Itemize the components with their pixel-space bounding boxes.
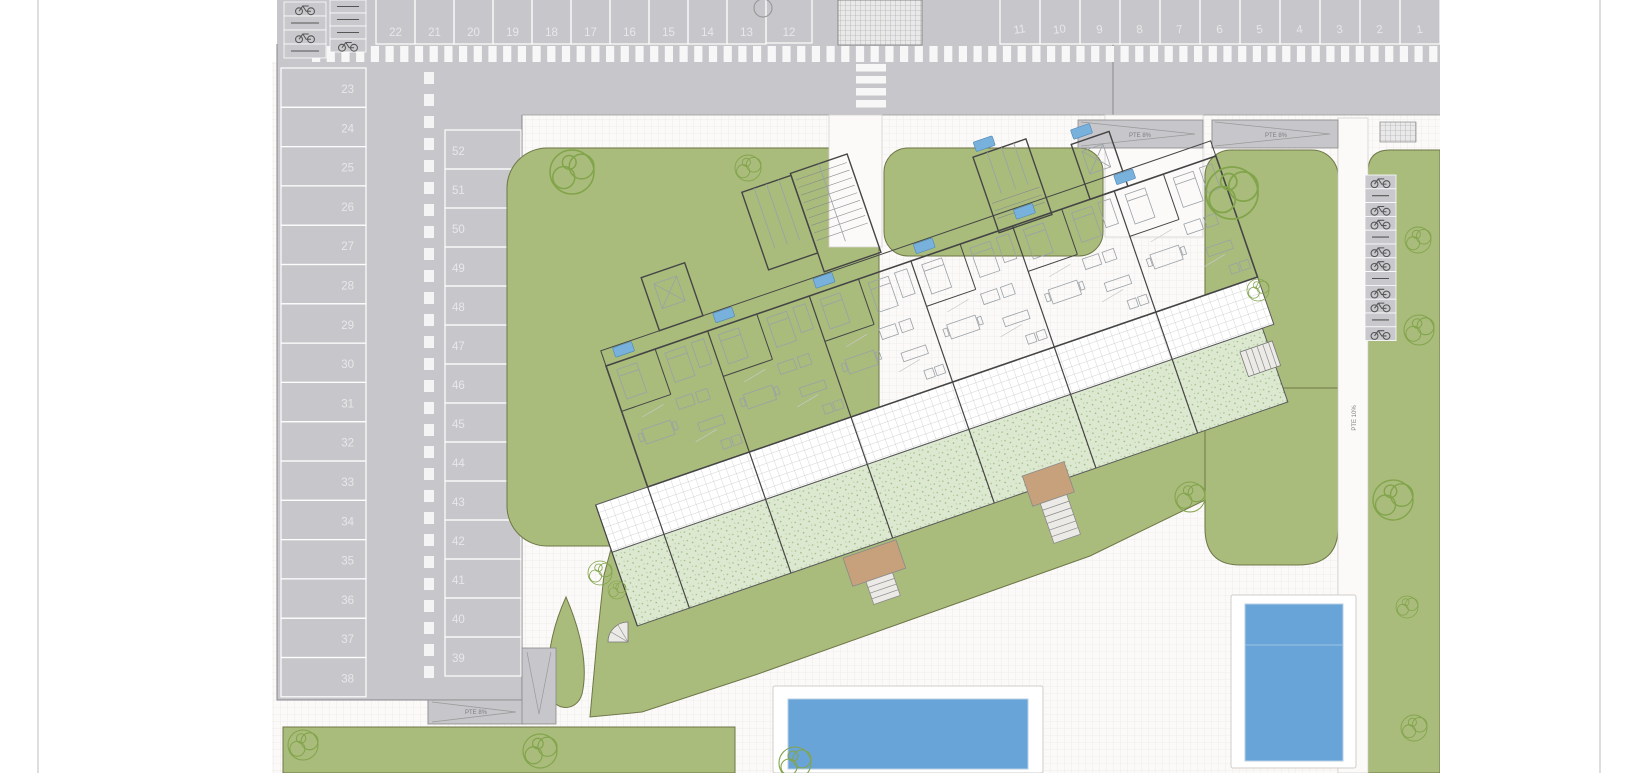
swimming-pool-side	[1231, 595, 1356, 768]
parking-stall-number: 29	[341, 320, 354, 332]
ramp-top-1: PTE 8%	[1078, 120, 1203, 148]
parking-stall-number: 31	[341, 398, 354, 410]
parking-stall-number: 33	[341, 477, 354, 489]
parking-stall-number: 52	[452, 146, 465, 158]
parking-stall-number: 37	[341, 634, 354, 646]
side-ramp-label: PTE 10%	[1352, 405, 1358, 431]
parking-stall-number: 35	[341, 556, 354, 568]
ramp-label: PTE 8%	[1129, 133, 1152, 139]
left-parking-lot	[277, 40, 522, 700]
parking-stall-number: 38	[341, 674, 354, 686]
parking-stall-number: 17	[584, 27, 597, 39]
parking-stall-number: 25	[341, 163, 354, 175]
parking-stall-number: 47	[452, 341, 465, 353]
parking-stall-number: 42	[452, 536, 465, 548]
path-crossing-pad	[1380, 122, 1416, 142]
page-margin-right	[1440, 0, 1638, 773]
parking-stall-number: 51	[452, 185, 465, 197]
site-plan-drawing: 2221201918171615141312111098765432123242…	[0, 0, 1638, 773]
site-plan-page: 2221201918171615141312111098765432123242…	[0, 0, 1638, 773]
parking-stall-number: 34	[341, 516, 354, 528]
parking-stall-number: 22	[389, 27, 402, 39]
parking-stall-number: 21	[428, 27, 441, 39]
parking-stall-number: 20	[467, 27, 480, 39]
parking-stall-number: 32	[341, 438, 354, 450]
parking-stall-number: 12	[783, 27, 796, 39]
parking-stall-number: 24	[341, 123, 354, 135]
parking-stall-number: 13	[740, 27, 753, 39]
parking-stall-number: 14	[701, 27, 714, 39]
paved-crossing-pad	[838, 0, 922, 45]
parking-stall-number: 28	[341, 281, 354, 293]
parking-stall-number: 45	[452, 419, 465, 431]
parking-stall-number: 43	[452, 497, 465, 509]
parking-stall-number: 50	[452, 224, 465, 236]
parking-stall-number: 27	[341, 241, 354, 253]
parking-stall-number: 49	[452, 263, 465, 275]
parking-stall-number: 10	[1052, 23, 1066, 37]
parking-stall-number: 44	[452, 458, 465, 470]
parking-stall-number: 40	[452, 614, 465, 626]
ramp-label: PTE 8%	[1265, 133, 1288, 139]
parking-stall-number: 48	[452, 302, 465, 314]
swimming-pool-main	[773, 686, 1043, 773]
parking-stall-number: 11	[1013, 23, 1027, 37]
parking-stall-number: 46	[452, 380, 465, 392]
ramp-bottom: PTE 8%	[428, 700, 524, 724]
parking-stall-number: 19	[506, 27, 519, 39]
parking-stall-number: 39	[452, 653, 465, 665]
ramp-top-2: PTE 8%	[1212, 120, 1338, 148]
parking-stall-number: 36	[341, 595, 354, 607]
parking-stall-number: 23	[341, 84, 354, 96]
ramp-label: PTE 8%	[465, 710, 488, 716]
page-margin-left	[0, 0, 272, 773]
parking-stall-number: 26	[341, 202, 354, 214]
parking-stall-number: 15	[662, 27, 675, 39]
parking-stall-number: 18	[545, 27, 558, 39]
parking-stall-number: 16	[623, 27, 636, 39]
walkway-ramp	[522, 648, 556, 724]
parking-stall-number: 30	[341, 359, 354, 371]
parking-stall-number: 41	[452, 575, 465, 587]
